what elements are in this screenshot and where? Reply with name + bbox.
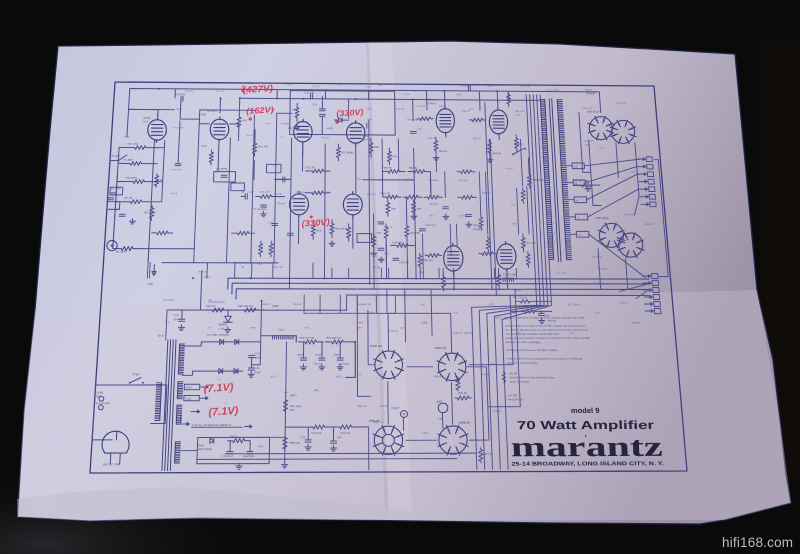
svg-text:hifi168.com: hifi168.com	[722, 535, 793, 550]
